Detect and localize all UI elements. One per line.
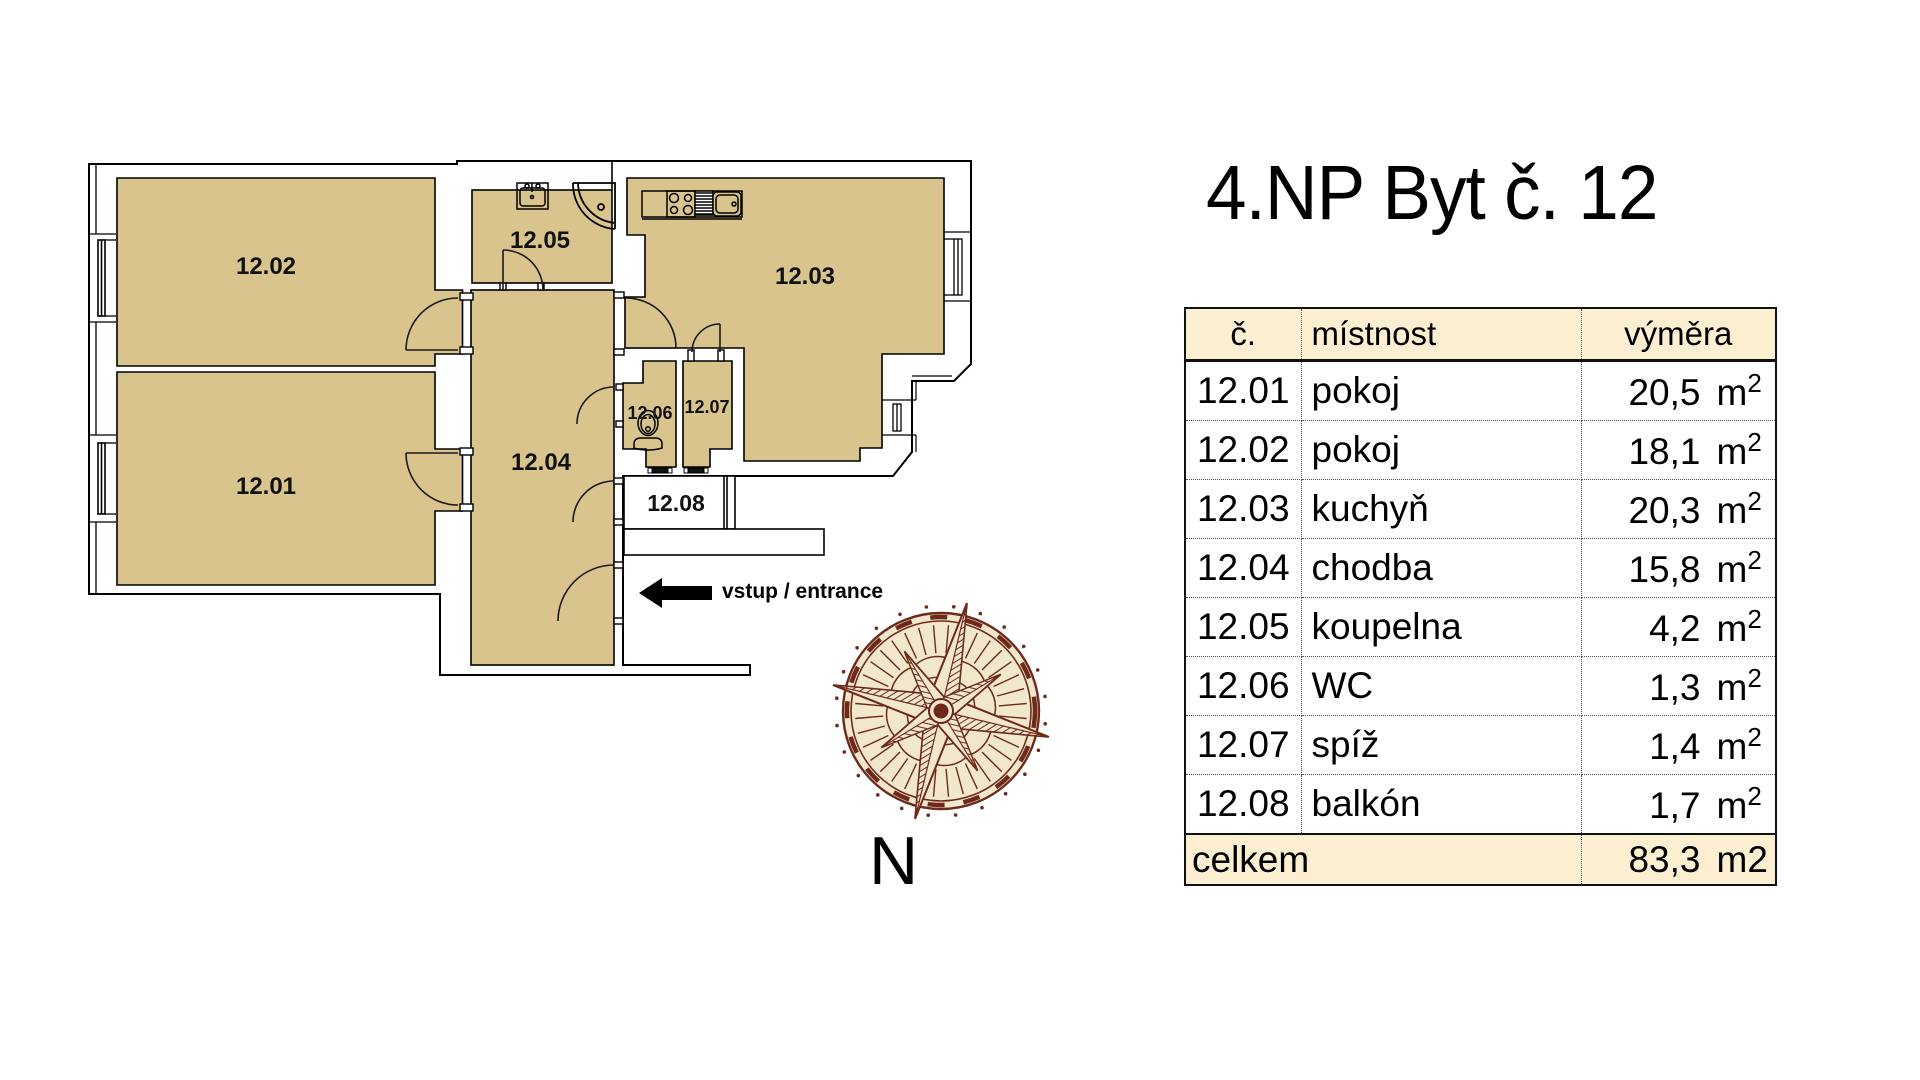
svg-text:12.03: 12.03 xyxy=(775,263,835,290)
svg-text:12.08: 12.08 xyxy=(647,490,705,516)
svg-text:vstup / entrance: vstup / entrance xyxy=(722,580,883,603)
svg-text:12.06: 12.06 xyxy=(627,403,672,423)
svg-text:12.02: 12.02 xyxy=(236,253,296,280)
svg-text:12.05: 12.05 xyxy=(510,227,570,254)
svg-text:12.04: 12.04 xyxy=(511,449,572,476)
svg-text:12.01: 12.01 xyxy=(236,473,296,500)
svg-text:N: N xyxy=(869,823,918,899)
svg-text:12.07: 12.07 xyxy=(684,397,729,417)
